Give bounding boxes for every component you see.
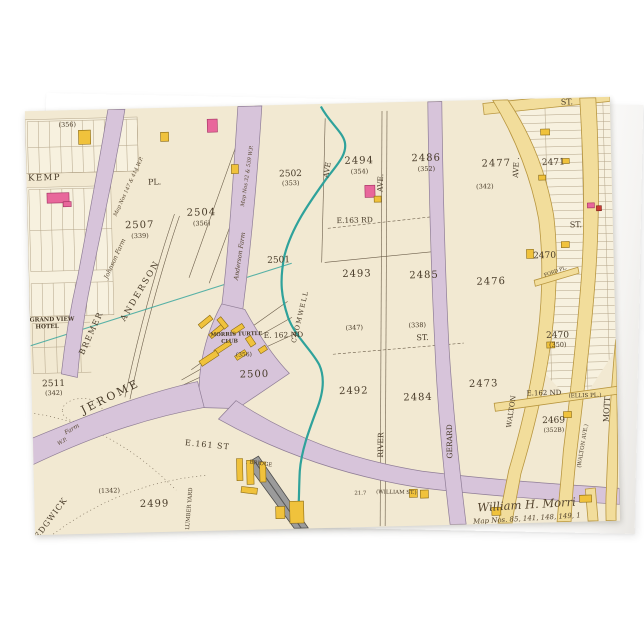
map-label-6: (356) (193, 219, 211, 227)
map-label-5: 2504 (187, 207, 217, 219)
map-label-54: 2470 (546, 330, 569, 341)
map-label-46: 2477 (481, 158, 511, 170)
map-label-13: HOTEL (35, 324, 58, 331)
map-label-31: 2494 (344, 155, 374, 167)
map-label-2: PL. (148, 177, 161, 186)
map-label-67: (WILLIAM ST.) (376, 489, 417, 496)
map-label-38: (347) (345, 324, 363, 332)
mockup-stage: (356)KEMPPL.2507(339)2504(356)25012502(3… (0, 0, 644, 644)
map-label-3: 2507 (125, 220, 155, 232)
map-label-43: RIVER (376, 432, 385, 458)
map-label-57: (ELLIS PL.) (568, 392, 601, 400)
map-label-48: 2471 (542, 158, 565, 169)
map-label-52: ST. (561, 97, 573, 106)
map-label-50: 2470 (533, 251, 556, 262)
map-label-69: (1342) (98, 486, 120, 495)
map-label-42: AVE. (375, 174, 385, 194)
map-label-24: CLUB (221, 339, 238, 345)
map-label-10: 2511 (42, 379, 65, 390)
map-label-7: 2501 (267, 255, 290, 266)
map-label-59: (352B) (544, 427, 565, 434)
map-label-62: MOTT (602, 396, 612, 423)
map-label-58: 2469 (542, 416, 565, 427)
map-label-30: 2485 (409, 270, 439, 282)
map-label-4: (339) (131, 232, 149, 240)
map-label-55: (350) (549, 341, 567, 349)
map-label-12: GRAND VIEW (30, 317, 75, 324)
page-background: { "scene": { "background": "#ffffff", "p… (0, 0, 644, 644)
greeting-card-front[interactable]: (356)KEMPPL.2507(339)2504(356)25012502(3… (25, 97, 620, 535)
map-label-51: ST. (570, 220, 582, 229)
map-label-44: GERARD (445, 424, 454, 458)
map-label-32: (354) (351, 167, 369, 175)
map-label-23: MORRIS TURTLE (210, 331, 262, 338)
map-label-11: (342) (45, 389, 63, 397)
map-label-9: (353) (282, 179, 300, 187)
map-label-8: 2502 (279, 169, 302, 180)
map-label-34: (352) (418, 165, 436, 173)
map-label-45: AVE . (511, 157, 521, 179)
map-label-35: E.163 RD (336, 215, 372, 225)
map-label-33: 2486 (411, 153, 441, 165)
map-label-0: (356) (58, 120, 76, 128)
map-label-37: 2484 (403, 392, 433, 404)
map-label-25: (356) (236, 351, 252, 358)
map-label-1: KEMP (28, 173, 61, 184)
map-label-39: (338) (408, 321, 426, 329)
map-label-53: 2473 (469, 378, 499, 390)
map-label-40: ST. (416, 333, 428, 342)
map-label-29: 2493 (342, 268, 372, 280)
map-label-68: 2499 (140, 498, 170, 510)
map-label-49: 2476 (476, 276, 506, 288)
map-label-27: 2500 (240, 369, 270, 381)
atlas-map-artwork: (356)KEMPPL.2507(339)2504(356)25012502(3… (25, 97, 620, 535)
map-label-66: 21.7 (354, 491, 367, 497)
map-label-36: 2492 (339, 385, 369, 397)
map-label-47: (342) (476, 182, 494, 190)
map-label-56: E.162 ND (527, 389, 562, 398)
